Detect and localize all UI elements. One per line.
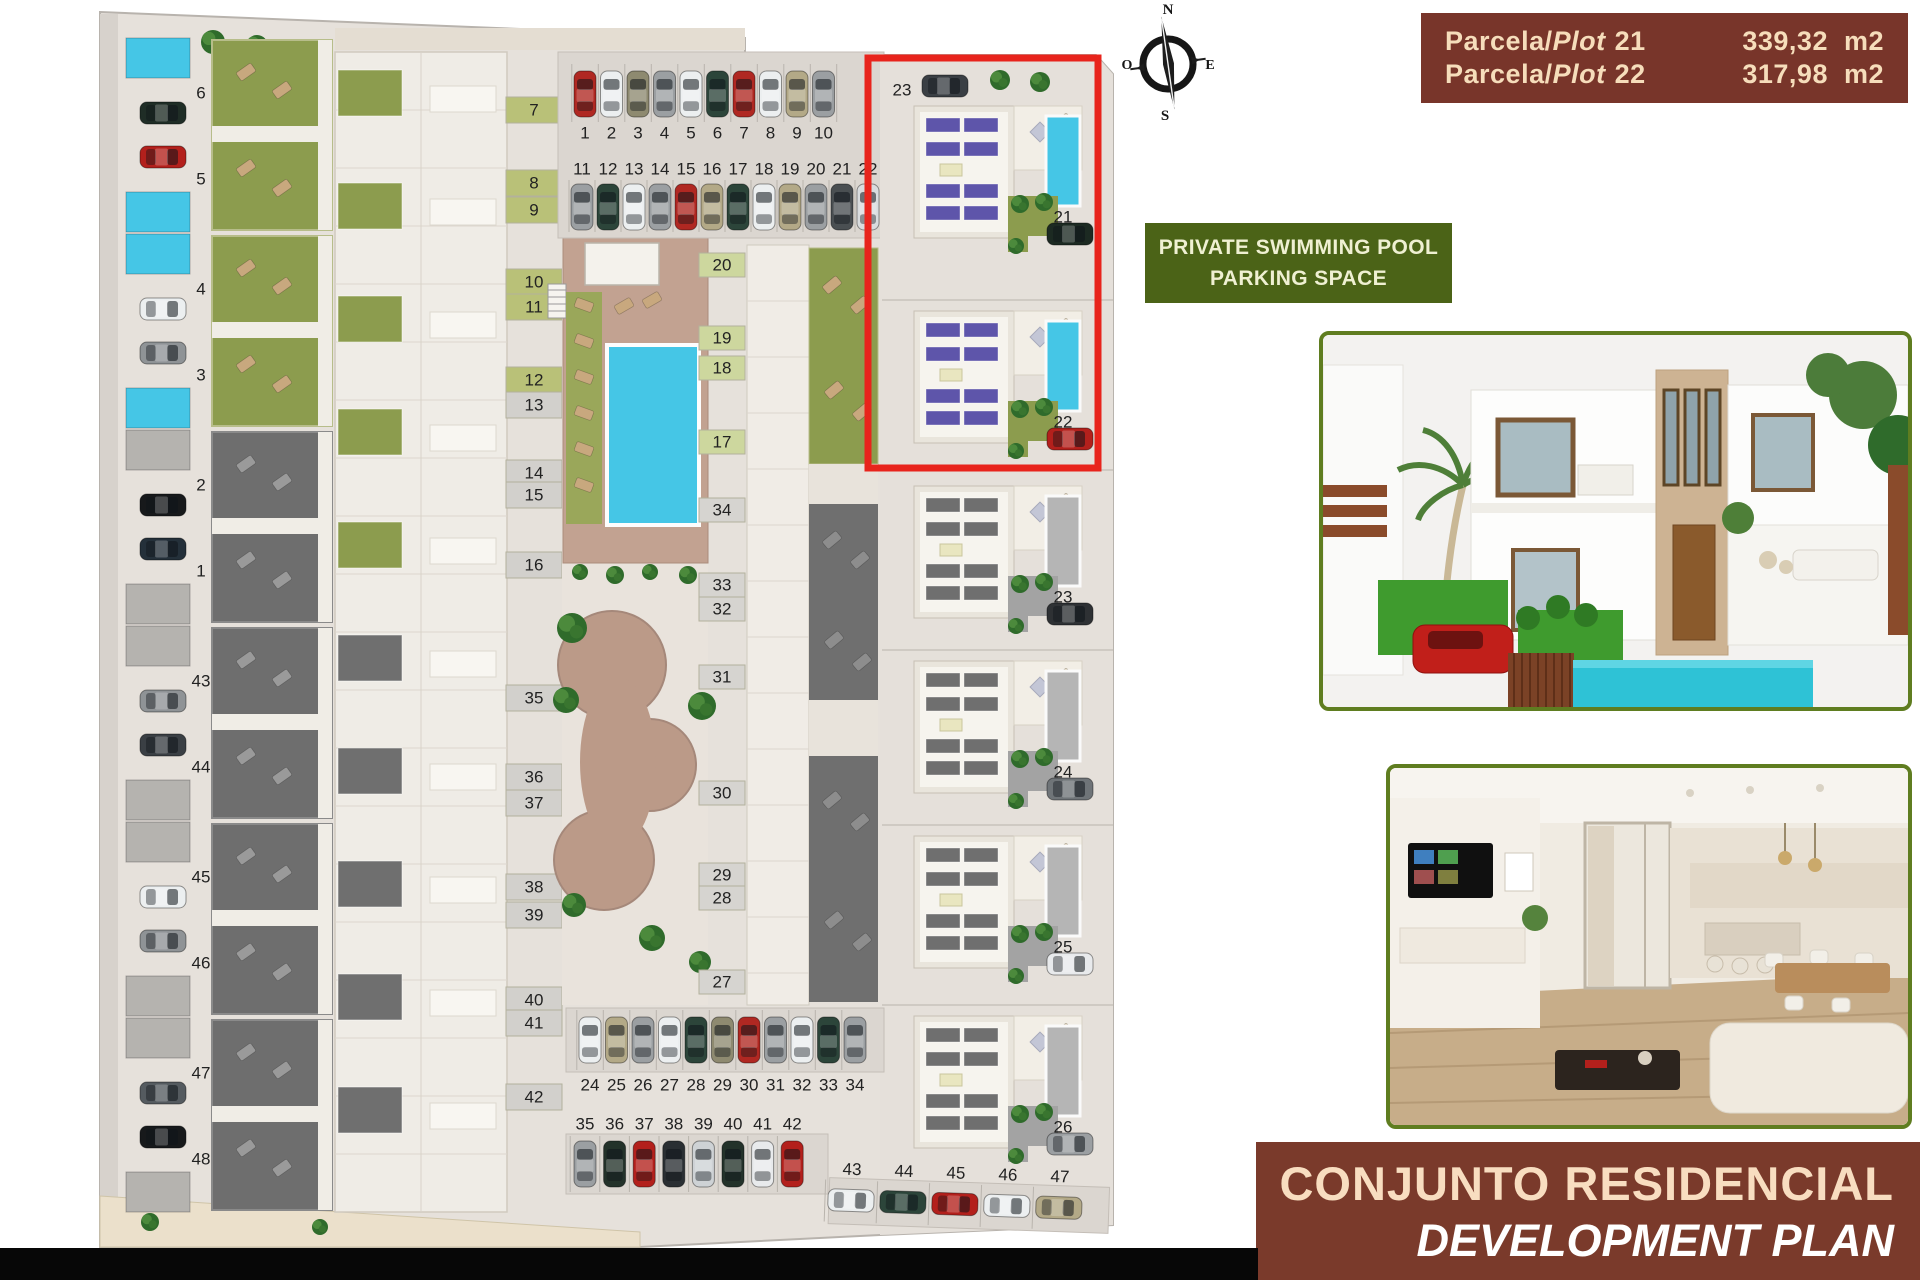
svg-text:17: 17 [729, 160, 748, 179]
exterior-render-scene [1323, 335, 1908, 707]
villa-plot-24: 24 [914, 661, 1093, 809]
svg-text:19: 19 [781, 160, 800, 179]
plot-22-name: Plot [1553, 59, 1606, 90]
bottom-bar [0, 1248, 1258, 1280]
svg-text:16: 16 [525, 556, 544, 575]
svg-text:23: 23 [893, 81, 912, 100]
car-icon [140, 1082, 186, 1104]
kitchen-island [1705, 923, 1800, 955]
swimming-pool [1573, 660, 1813, 707]
svg-text:20: 20 [807, 160, 826, 179]
upper-window [1498, 420, 1573, 495]
compass-east-label: E [1205, 58, 1214, 73]
svg-text:28: 28 [713, 889, 732, 908]
car-icon [692, 1141, 714, 1187]
svg-text:29: 29 [713, 1076, 732, 1095]
svg-text:9: 9 [792, 124, 801, 143]
plot-21-prefix: Parcela/ [1445, 26, 1553, 57]
sideboard [1400, 928, 1525, 963]
indoor-plant [1522, 905, 1548, 931]
car-icon [140, 734, 186, 756]
svg-text:39: 39 [694, 1115, 713, 1134]
svg-text:5: 5 [686, 124, 695, 143]
villa-pool [1046, 1026, 1080, 1116]
car-icon [675, 184, 697, 230]
svg-text:47: 47 [192, 1064, 211, 1083]
villa-plot-22: 22 [914, 311, 1093, 459]
car-icon [813, 71, 835, 117]
svg-text:44: 44 [192, 758, 211, 777]
svg-text:2: 2 [607, 124, 616, 143]
compass-north-label: N [1163, 4, 1174, 18]
svg-text:47: 47 [1050, 1167, 1070, 1187]
svg-text:8: 8 [766, 124, 775, 143]
svg-text:4: 4 [660, 124, 669, 143]
interior-render-photo [1386, 764, 1912, 1129]
car-icon [752, 1141, 774, 1187]
car-icon [140, 102, 186, 124]
svg-text:31: 31 [766, 1076, 785, 1095]
svg-text:1: 1 [580, 124, 589, 143]
svg-text:6: 6 [713, 124, 722, 143]
svg-text:10: 10 [814, 124, 833, 143]
plot-22-unit: m2 [1844, 59, 1884, 90]
car-icon [633, 1141, 655, 1187]
car-icon [601, 71, 623, 117]
plot-21-area: 339,32 [1742, 26, 1828, 57]
car-icon [1035, 1196, 1082, 1220]
compass-needle [1124, 11, 1212, 115]
plot-21-name: Plot [1553, 26, 1606, 57]
svg-text:44: 44 [894, 1161, 914, 1181]
svg-text:17: 17 [713, 433, 732, 452]
villa-pool [1046, 846, 1080, 936]
svg-text:2: 2 [196, 476, 205, 495]
svg-text:13: 13 [525, 396, 544, 415]
car-icon [140, 146, 186, 168]
svg-text:1: 1 [196, 562, 205, 581]
svg-text:26: 26 [634, 1076, 653, 1095]
wall-art [1505, 853, 1533, 891]
svg-text:42: 42 [783, 1115, 802, 1134]
svg-text:13: 13 [625, 160, 644, 179]
villa-plot-23: 23 [914, 486, 1093, 634]
car-icon [663, 1141, 685, 1187]
svg-text:31: 31 [713, 668, 732, 687]
svg-text:37: 37 [525, 794, 544, 813]
car-icon [738, 1017, 760, 1063]
kitchen-cabinets [1690, 863, 1908, 908]
car-icon [140, 930, 186, 952]
svg-text:36: 36 [605, 1115, 624, 1134]
svg-text:43: 43 [192, 672, 211, 691]
car-icon [140, 298, 186, 320]
car-icon [722, 1141, 744, 1187]
villa-pool [1046, 671, 1080, 761]
balcony-furniture [1578, 465, 1633, 495]
villa-stone-column [1656, 370, 1728, 655]
car-icon [922, 75, 968, 97]
svg-text:5: 5 [196, 170, 205, 189]
svg-text:24: 24 [1054, 763, 1073, 782]
villa-pool [1046, 321, 1080, 411]
svg-text:28: 28 [687, 1076, 706, 1095]
svg-text:20: 20 [713, 256, 732, 275]
svg-text:21: 21 [1054, 208, 1073, 227]
car-icon [140, 1126, 186, 1148]
tv-panel [1408, 843, 1493, 898]
svg-text:8: 8 [529, 174, 538, 193]
car-icon [791, 1017, 813, 1063]
patio-window [1585, 823, 1670, 988]
car-icon [140, 342, 186, 364]
svg-text:22: 22 [1054, 413, 1073, 432]
svg-text:18: 18 [755, 160, 774, 179]
villa-column: 23212223242526 [880, 55, 1113, 1235]
plot-info-box: Parcela/Plot21 339,32m2 Parcela/Plot22 3… [1421, 13, 1908, 103]
svg-text:29: 29 [713, 866, 732, 885]
left-fence [1323, 485, 1387, 537]
svg-text:38: 38 [664, 1115, 683, 1134]
car-icon [140, 538, 186, 560]
car-icon [654, 71, 676, 117]
svg-text:39: 39 [525, 906, 544, 925]
svg-text:30: 30 [713, 784, 732, 803]
compass-rose: N S O E [1118, 4, 1218, 122]
svg-text:43: 43 [842, 1160, 862, 1180]
car-icon [828, 1189, 875, 1213]
car-icon [140, 494, 186, 516]
svg-text:25: 25 [607, 1076, 626, 1095]
car-icon [753, 184, 775, 230]
car-icon [733, 71, 755, 117]
svg-text:34: 34 [846, 1076, 865, 1095]
svg-text:24: 24 [581, 1076, 600, 1095]
svg-text:15: 15 [677, 160, 696, 179]
car-icon [779, 184, 801, 230]
car-icon [685, 1017, 707, 1063]
car-icon [707, 71, 729, 117]
svg-text:7: 7 [529, 101, 538, 120]
svg-text:21: 21 [833, 160, 852, 179]
feature-line-1: PRIVATE SWIMMING POOL [1159, 232, 1438, 264]
slat-fence [1508, 653, 1574, 707]
car-icon [760, 71, 782, 117]
red-car [1413, 625, 1513, 673]
svg-text:35: 35 [576, 1115, 595, 1134]
car-icon [649, 184, 671, 230]
car-icon [659, 1017, 681, 1063]
car-icon [712, 1017, 734, 1063]
svg-text:32: 32 [713, 600, 732, 619]
front-door [1673, 525, 1715, 640]
plot-22-number: 22 [1615, 59, 1646, 90]
top-parking: 12345678910111213141516171819202122 [558, 52, 884, 238]
svg-text:27: 27 [713, 973, 732, 992]
plot-22-area: 317,98 [1742, 59, 1828, 90]
plot-21-number: 21 [1615, 26, 1646, 57]
svg-text:34: 34 [713, 501, 732, 520]
curtain [1588, 826, 1614, 986]
car-icon [574, 71, 596, 117]
svg-text:48: 48 [192, 1150, 211, 1169]
car-icon [579, 1017, 601, 1063]
plot-22-prefix: Parcela/ [1445, 59, 1553, 90]
svg-text:12: 12 [525, 371, 544, 390]
car-icon [574, 1141, 596, 1187]
svg-text:38: 38 [525, 878, 544, 897]
svg-text:46: 46 [998, 1165, 1018, 1185]
compass-west-label: O [1122, 58, 1133, 73]
plot-21-unit: m2 [1844, 26, 1884, 57]
patio-plant [1722, 502, 1754, 534]
svg-text:30: 30 [740, 1076, 759, 1095]
svg-text:4: 4 [196, 280, 205, 299]
svg-text:9: 9 [529, 201, 538, 220]
svg-text:36: 36 [525, 768, 544, 787]
interior-render-scene [1390, 768, 1908, 1125]
villa-pool [1046, 496, 1080, 586]
svg-text:3: 3 [633, 124, 642, 143]
svg-text:18: 18 [713, 359, 732, 378]
svg-text:33: 33 [713, 576, 732, 595]
left-wall [1390, 798, 1540, 1028]
svg-text:37: 37 [635, 1115, 654, 1134]
svg-text:33: 33 [819, 1076, 838, 1095]
car-icon [831, 184, 853, 230]
svg-text:32: 32 [793, 1076, 812, 1095]
svg-text:15: 15 [525, 486, 544, 505]
car-icon [727, 184, 749, 230]
svg-text:19: 19 [713, 329, 732, 348]
car-icon [765, 1017, 787, 1063]
plot-21-row: Parcela/Plot21 339,32m2 [1445, 26, 1884, 57]
svg-text:26: 26 [1054, 1118, 1073, 1137]
svg-text:45: 45 [946, 1163, 966, 1183]
roof-terrace [1728, 525, 1908, 645]
compass-south-label: S [1161, 108, 1169, 122]
feature-line-2: PARKING SPACE [1210, 263, 1387, 295]
car-icon [140, 886, 186, 908]
svg-text:11: 11 [525, 298, 543, 317]
car-icon [597, 184, 619, 230]
svg-text:27: 27 [660, 1076, 679, 1095]
svg-text:3: 3 [196, 366, 205, 385]
svg-text:14: 14 [525, 464, 544, 483]
svg-text:41: 41 [753, 1115, 772, 1134]
site-plan: 6543214344454647487891011121314151635363… [0, 0, 1130, 1250]
svg-text:40: 40 [724, 1115, 743, 1134]
car-icon [680, 71, 702, 117]
svg-text:7: 7 [739, 124, 748, 143]
svg-text:10: 10 [525, 273, 544, 292]
car-icon [140, 690, 186, 712]
car-icon [805, 184, 827, 230]
right-window [1753, 415, 1813, 490]
communal-pool [607, 345, 699, 525]
car-icon [606, 1017, 628, 1063]
svg-text:23: 23 [1054, 588, 1073, 607]
villa-plot-26: 26 [914, 1016, 1093, 1164]
car-icon [701, 184, 723, 230]
car-icon [604, 1141, 626, 1187]
coffee-table [1555, 1050, 1680, 1090]
banner-title-spanish: CONJUNTO RESIDENCIAL [1256, 1156, 1894, 1211]
svg-text:16: 16 [703, 160, 722, 179]
site-plan-drawing: 6543214344454647487891011121314151635363… [0, 0, 1130, 1250]
car-icon [818, 1017, 840, 1063]
development-plan-page: 6543214344454647487891011121314151635363… [0, 0, 1920, 1280]
terrace-sofa [1793, 550, 1878, 580]
car-icon [786, 71, 808, 117]
villa-pool [1046, 116, 1080, 206]
svg-text:40: 40 [525, 991, 544, 1010]
svg-text:41: 41 [525, 1014, 544, 1033]
feature-box: PRIVATE SWIMMING POOL PARKING SPACE [1145, 223, 1452, 303]
car-icon [781, 1141, 803, 1187]
car-icon [627, 71, 649, 117]
title-banner: CONJUNTO RESIDENCIAL DEVELOPMENT PLAN [1256, 1142, 1920, 1280]
svg-text:25: 25 [1054, 938, 1073, 957]
plot-22-row: Parcela/Plot22 317,98m2 [1445, 59, 1884, 90]
villa-plot-21: 21 [914, 106, 1093, 254]
svg-text:12: 12 [599, 160, 618, 179]
svg-text:14: 14 [651, 160, 670, 179]
car-icon [932, 1192, 979, 1216]
banner-title-english: DEVELOPMENT PLAN [1256, 1215, 1894, 1267]
svg-text:35: 35 [525, 689, 544, 708]
car-icon [623, 184, 645, 230]
sofa [1710, 1023, 1908, 1113]
car-icon [632, 1017, 654, 1063]
car-icon [571, 184, 593, 230]
svg-text:46: 46 [192, 954, 211, 973]
car-icon [880, 1190, 927, 1214]
central-area [548, 205, 716, 1005]
car-icon [844, 1017, 866, 1063]
villa-plot-25: 25 [914, 836, 1093, 984]
svg-text:45: 45 [192, 868, 211, 887]
exterior-render-photo [1319, 331, 1912, 711]
svg-text:11: 11 [573, 160, 591, 179]
svg-text:42: 42 [525, 1088, 544, 1107]
svg-text:6: 6 [196, 84, 205, 103]
car-icon [983, 1194, 1030, 1218]
